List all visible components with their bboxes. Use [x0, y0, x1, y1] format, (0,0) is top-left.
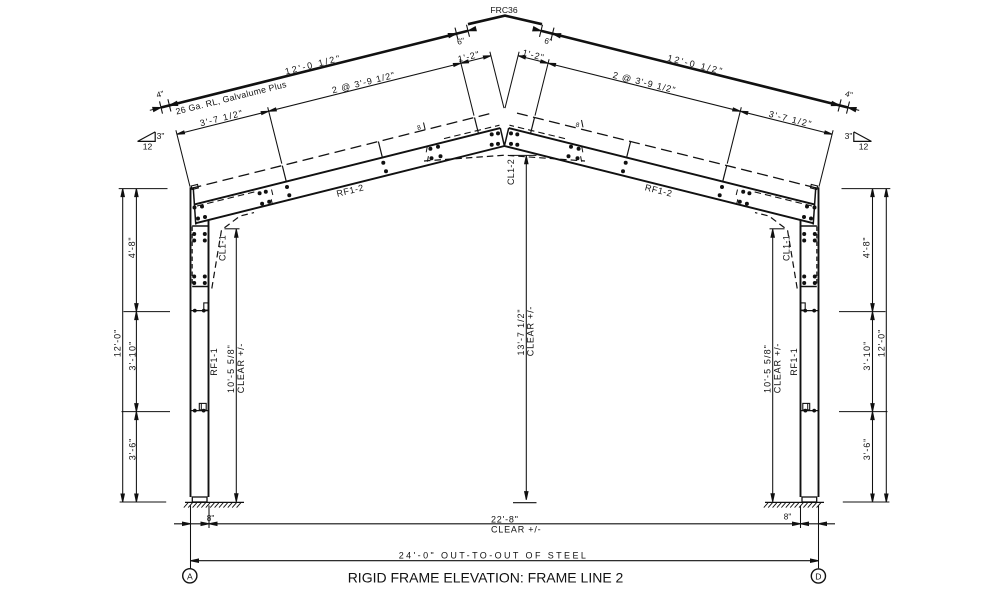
svg-text:22'-8": 22'-8" [491, 514, 519, 524]
svg-text:RF1-1: RF1-1 [789, 348, 799, 376]
svg-text:3'-10": 3'-10" [128, 340, 138, 370]
svg-text:CLEAR +/-: CLEAR +/- [491, 524, 541, 534]
svg-text:3": 3" [845, 131, 853, 141]
svg-text:3'-6": 3'-6" [862, 438, 872, 460]
svg-text:10'-5 5/8": 10'-5 5/8" [226, 344, 236, 393]
svg-text:CLEAR +/-: CLEAR +/- [526, 306, 536, 356]
svg-text:3'-6": 3'-6" [128, 438, 138, 460]
svg-text:12: 12 [859, 142, 869, 152]
svg-text:RIGID FRAME ELEVATION: FRAME L: RIGID FRAME ELEVATION: FRAME LINE 2 [348, 570, 624, 586]
svg-text:13'-7 1/2": 13'-7 1/2" [516, 309, 526, 356]
svg-text:8": 8" [207, 514, 215, 523]
svg-text:A: A [187, 571, 193, 581]
svg-text:3'-10": 3'-10" [862, 340, 872, 370]
svg-text:CL1-2: CL1-2 [506, 159, 516, 185]
svg-text:12'-0": 12'-0" [876, 329, 886, 357]
svg-text:CLEAR +/-: CLEAR +/- [772, 343, 782, 393]
svg-text:RF1-1: RF1-1 [209, 348, 219, 376]
svg-text:8": 8" [784, 513, 792, 522]
svg-text:4'-8": 4'-8" [862, 237, 872, 258]
svg-text:24'-0" OUT-TO-OUT OF STEEL: 24'-0" OUT-TO-OUT OF STEEL [399, 551, 589, 561]
svg-text:12: 12 [143, 141, 153, 151]
svg-text:CL1-1: CL1-1 [218, 235, 228, 261]
svg-text:12'-0": 12'-0" [113, 329, 123, 357]
svg-text:CL1-1: CL1-1 [781, 235, 791, 261]
svg-text:4'-8": 4'-8" [127, 237, 137, 258]
svg-text:10'-5 5/8": 10'-5 5/8" [763, 344, 773, 393]
svg-text:FRC36: FRC36 [490, 5, 517, 15]
svg-text:CLEAR +/-: CLEAR +/- [236, 343, 246, 393]
svg-text:D: D [815, 572, 821, 582]
svg-text:3": 3" [157, 131, 165, 141]
